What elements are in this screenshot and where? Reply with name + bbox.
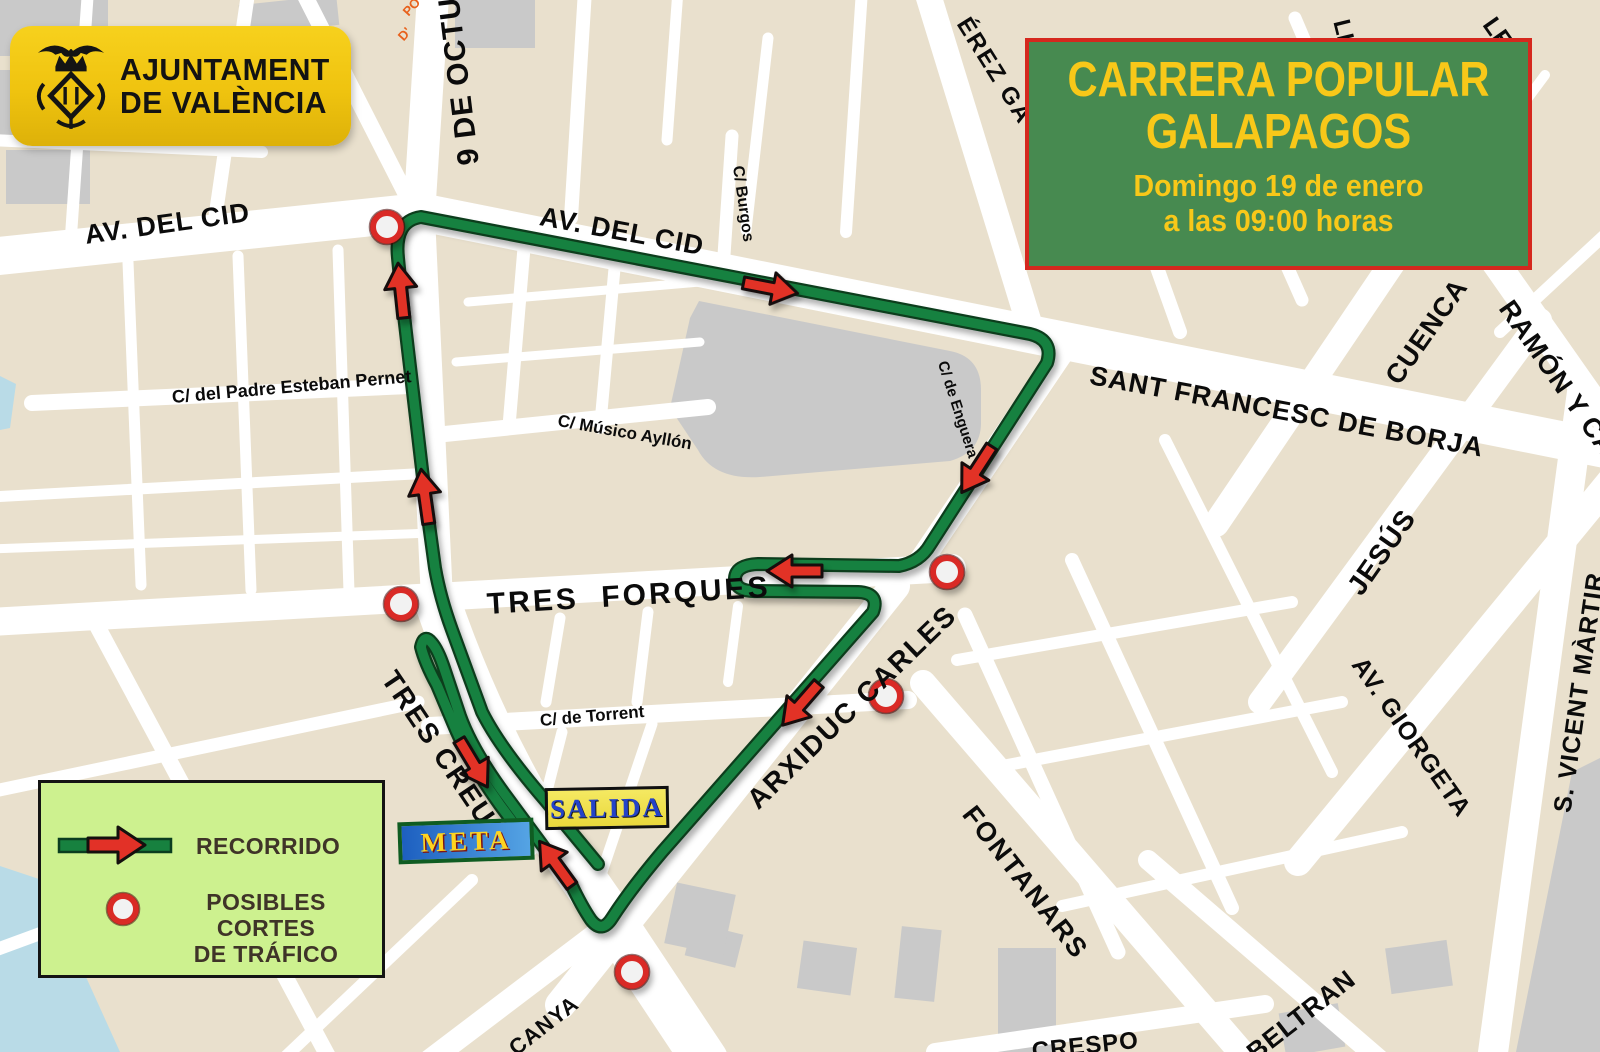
route-arrow	[88, 827, 145, 863]
legend-route-symbol	[53, 823, 188, 867]
finish-box: META	[397, 818, 534, 865]
valencia-coat-of-arms-icon	[32, 38, 110, 134]
ajuntament-banner: AJUNTAMENT DE VALÈNCIA	[10, 26, 351, 146]
event-title-line2: GALAPAGOS	[1066, 106, 1490, 158]
traffic-cut-marker	[615, 955, 650, 990]
event-date: Domingo 19 de enero	[1049, 168, 1508, 203]
event-title-box: CARRERA POPULAR GALAPAGOS Domingo 19 de …	[1025, 38, 1532, 270]
start-box: SALIDA	[545, 786, 670, 830]
legend-cut-symbol	[101, 887, 145, 931]
traffic-cut-marker	[370, 210, 405, 245]
legend-route-label: RECORRIDO	[196, 833, 340, 859]
event-title-line1: CARRERA POPULAR	[1066, 54, 1490, 106]
org-name-line2: DE VALÈNCIA	[120, 86, 330, 119]
start-label: SALIDA	[550, 792, 665, 825]
event-time: a las 09:00 horas	[1049, 203, 1508, 238]
org-name-line1: AJUNTAMENT	[120, 53, 330, 86]
traffic-cut-marker	[384, 587, 419, 622]
race-map-poster: AV. DEL CID AV. DEL CID 9 DE OCTU C/ Bur…	[0, 0, 1600, 1052]
traffic-cut-marker	[930, 555, 965, 590]
finish-label: META	[420, 824, 512, 858]
street-burgos	[723, 136, 732, 270]
legend-cuts-label: POSIBLES CORTESDE TRÁFICO	[161, 889, 371, 967]
org-name: AJUNTAMENT DE VALÈNCIA	[120, 53, 330, 120]
legend-box: RECORRIDO POSIBLES CORTESDE TRÁFICO	[38, 780, 385, 978]
